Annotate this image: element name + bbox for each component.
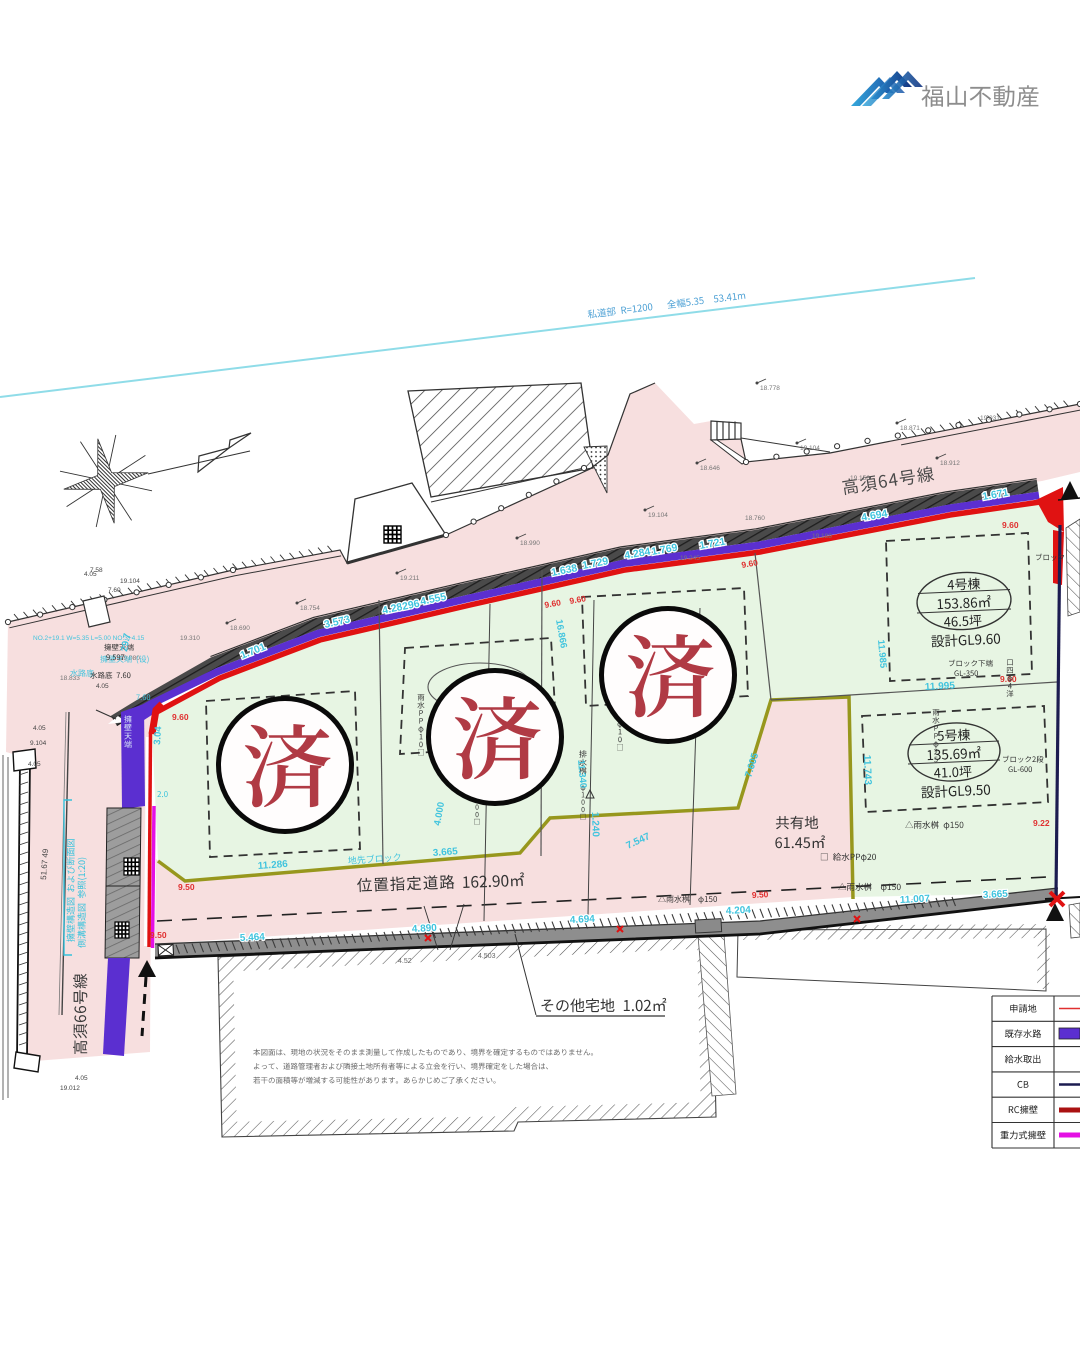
- svg-text:18.912: 18.912: [940, 460, 960, 467]
- svg-text:11.007: 11.007: [900, 893, 931, 906]
- svg-text:19.188: 19.188: [812, 533, 832, 540]
- svg-text:4.05: 4.05: [33, 725, 46, 732]
- svg-text:4.05: 4.05: [96, 683, 109, 690]
- svg-text:9.22: 9.22: [1033, 818, 1050, 828]
- svg-text:4.52: 4.52: [398, 958, 412, 965]
- svg-text:19.104: 19.104: [648, 512, 668, 519]
- svg-text:9.104: 9.104: [30, 740, 47, 747]
- svg-text:19.245: 19.245: [680, 555, 700, 562]
- svg-text:4.05: 4.05: [75, 1075, 88, 1082]
- svg-text:18.778: 18.778: [760, 385, 780, 392]
- svg-text:4.503: 4.503: [478, 953, 496, 960]
- svg-text:18.871: 18.871: [900, 425, 920, 432]
- svg-text:19.012: 19.012: [60, 1085, 80, 1092]
- svg-text:9.50: 9.50: [752, 889, 769, 900]
- svg-text:19.156: 19.156: [850, 475, 870, 482]
- svg-text:18.646: 18.646: [700, 465, 720, 472]
- svg-text:4.05: 4.05: [84, 571, 97, 578]
- svg-text:18.833: 18.833: [60, 675, 80, 682]
- svg-text:9.60: 9.60: [1000, 674, 1017, 684]
- svg-text:18.990: 18.990: [520, 540, 540, 547]
- svg-text:19.310: 19.310: [180, 635, 200, 642]
- svg-text:9.60: 9.60: [1002, 520, 1019, 530]
- svg-text:9.50: 9.50: [150, 930, 167, 940]
- svg-text:4.204: 4.204: [726, 905, 752, 917]
- svg-text:19.104: 19.104: [120, 578, 140, 585]
- svg-text:18.754: 18.754: [300, 605, 320, 612]
- svg-text:7.60: 7.60: [108, 587, 121, 594]
- svg-text:11.286: 11.286: [257, 859, 288, 872]
- svg-text:4.694: 4.694: [570, 914, 596, 926]
- svg-text:4.890: 4.890: [412, 923, 438, 935]
- svg-text:1.240: 1.240: [589, 812, 601, 838]
- svg-text:3.665: 3.665: [432, 846, 458, 859]
- svg-text:5.464: 5.464: [240, 932, 266, 944]
- svg-text:4.05: 4.05: [28, 761, 41, 768]
- svg-text:9.60: 9.60: [172, 712, 189, 722]
- svg-text:18.690: 18.690: [230, 625, 250, 632]
- svg-text:19.031: 19.031: [980, 415, 1000, 422]
- svg-text:11.743: 11.743: [861, 755, 873, 786]
- svg-text:18.760: 18.760: [745, 515, 765, 522]
- svg-text:9.50: 9.50: [178, 882, 195, 892]
- svg-text:19.211: 19.211: [400, 575, 420, 582]
- svg-text:3.665: 3.665: [983, 889, 1009, 901]
- svg-text:11.995: 11.995: [925, 680, 956, 693]
- svg-text:19.104: 19.104: [800, 445, 820, 452]
- svg-text:3.04: 3.04: [152, 725, 164, 745]
